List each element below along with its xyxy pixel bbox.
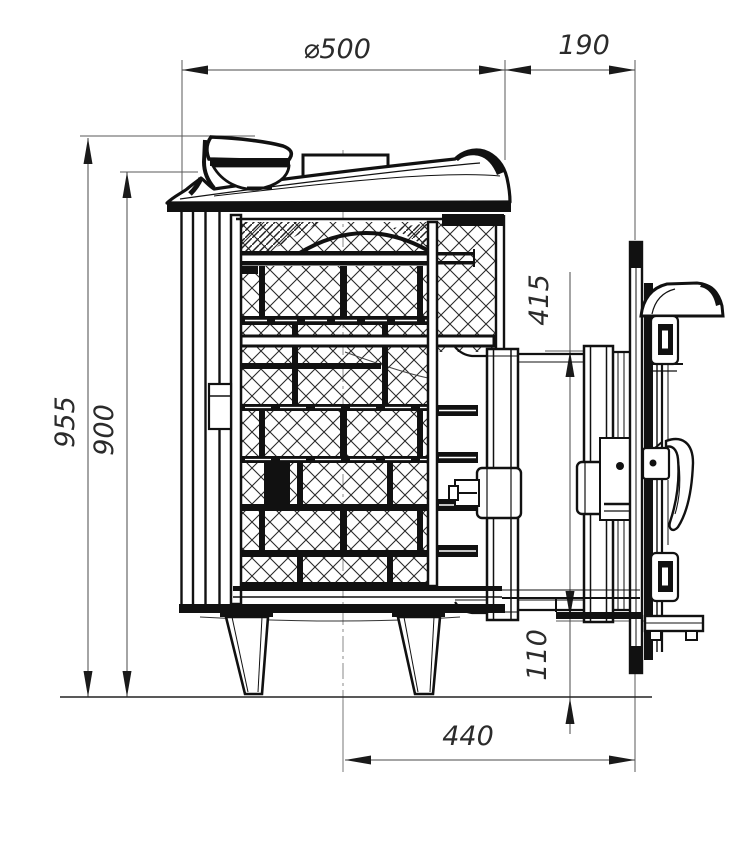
top-hinge — [651, 316, 683, 371]
door-bracket-plate — [600, 438, 631, 520]
stone-shelf — [241, 336, 494, 346]
left-leg — [220, 610, 273, 694]
left-wall — [182, 212, 242, 604]
dim-label-440: 440 — [442, 721, 494, 752]
lid-bowl — [204, 137, 291, 189]
stone-infill — [241, 222, 496, 587]
dim-label-415: 415 — [524, 274, 555, 326]
door-foot-bracket — [645, 616, 703, 640]
right-wall — [496, 215, 504, 352]
bottom-hinge — [651, 553, 678, 601]
dim-label-900: 900 — [89, 404, 120, 456]
tunnel-clamp-a — [477, 468, 521, 518]
stove-drawing-svg: ⌀500 190 955 900 415 110 440 — [0, 0, 748, 853]
legs — [220, 610, 445, 694]
dim-label-diameter-500: ⌀500 — [303, 34, 371, 65]
firebox-tunnel — [449, 346, 631, 622]
technical-drawing-canvas: ⌀500 190 955 900 415 110 440 — [0, 0, 748, 853]
dim-label-955: 955 — [50, 396, 81, 448]
right-leg — [392, 610, 445, 694]
dim-label-110: 110 — [522, 629, 553, 681]
dim-label-190: 190 — [558, 30, 610, 61]
side-latch — [209, 384, 231, 429]
bracket-bolt — [616, 462, 624, 470]
door-assembly — [630, 242, 723, 673]
